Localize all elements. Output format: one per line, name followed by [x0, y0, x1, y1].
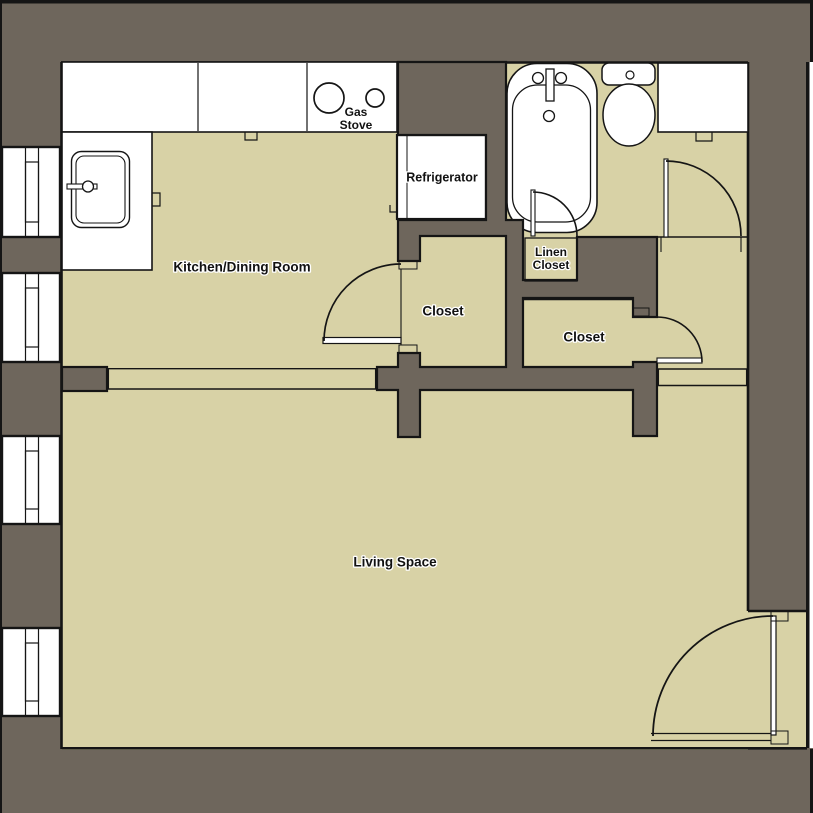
tub-spout-icon — [546, 69, 554, 101]
fixture-label-stove-1: Gas — [345, 105, 368, 119]
burner-small-icon — [366, 89, 384, 107]
room-label-linen-2: Closet — [533, 258, 570, 272]
room-label-closet-right: Closet — [563, 330, 605, 345]
window — [2, 628, 60, 716]
toilet-bowl-icon — [603, 84, 655, 146]
room-label-linen-1: Linen — [535, 245, 567, 259]
room-label-closet-left: Closet — [422, 304, 464, 319]
window — [2, 436, 60, 524]
window — [2, 147, 60, 237]
door-leaf — [657, 358, 702, 363]
room-label-living: Living Space — [353, 555, 437, 570]
door-leaf — [664, 159, 668, 237]
living-wall-stub — [62, 367, 107, 391]
toilet — [602, 63, 655, 146]
window — [2, 273, 60, 362]
door-leaf — [771, 616, 776, 735]
kitchen-sink-counter — [62, 132, 160, 270]
fixture-label-stove-2: Stove — [340, 118, 373, 132]
fixture-label-refrigerator: Refrigerator — [406, 170, 478, 184]
burner-large-icon — [314, 83, 344, 113]
floor-plan-canvas: Kitchen/Dining Room Living Space Closet … — [0, 0, 813, 813]
door-leaf — [531, 190, 535, 236]
entry-nook-floor — [748, 611, 806, 748]
tub-drain-icon — [544, 111, 555, 122]
door-leaf — [323, 338, 401, 344]
floor-plan: Kitchen/Dining Room Living Space Closet … — [0, 0, 813, 813]
room-label-kitchen: Kitchen/Dining Room — [173, 260, 310, 275]
tub-tap-icon — [533, 73, 544, 84]
vanity-counter — [658, 63, 748, 141]
bathtub — [507, 64, 597, 233]
tub-tap-icon — [556, 73, 567, 84]
